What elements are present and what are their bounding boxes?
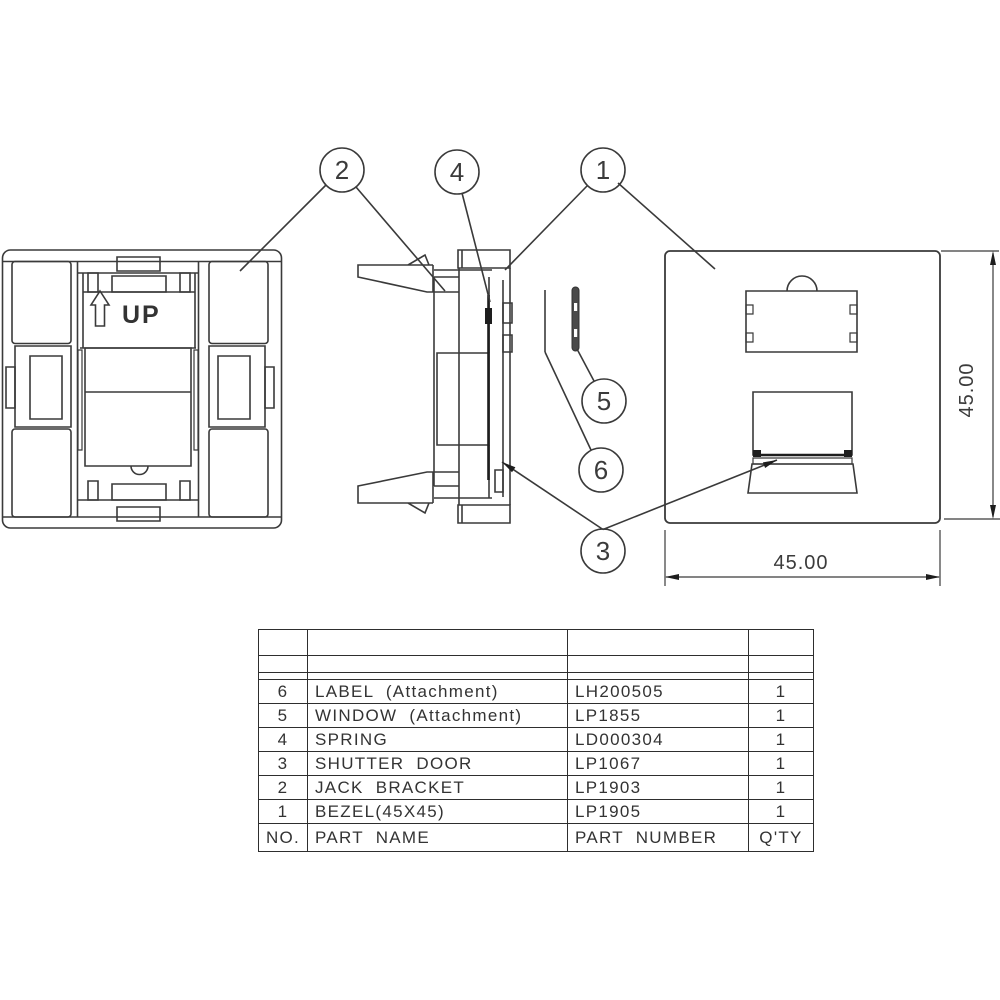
cell-qty: 1: [749, 704, 814, 728]
cell-part-name: LABEL (Attachment): [308, 680, 568, 704]
cell-qty: 1: [749, 728, 814, 752]
left-latch: [6, 346, 71, 427]
cell-no: 6: [259, 680, 308, 704]
cell-part-number: LP1903: [568, 776, 749, 800]
left-wing-top: [12, 262, 71, 344]
cell-qty: 1: [749, 752, 814, 776]
right-wing-top: [209, 262, 268, 344]
table-row-empty: [259, 673, 814, 680]
cell-part-number: LP1067: [568, 752, 749, 776]
rear-view: UP: [3, 250, 282, 528]
shutter-door-edge: [495, 470, 503, 492]
callout-balloons: 2 4 1 5 6 3: [320, 148, 626, 573]
parts-table: 6 LABEL (Attachment) LH200505 1 5 WINDOW…: [258, 629, 814, 852]
svg-text:5: 5: [597, 386, 611, 416]
callout-leaders: [240, 183, 777, 530]
dimensions: 45.00 45.00: [665, 251, 1000, 586]
svg-text:4: 4: [450, 157, 464, 187]
up-label: UP: [122, 301, 161, 329]
table-row: 6 LABEL (Attachment) LH200505 1: [259, 680, 814, 704]
table-row-empty: [259, 656, 814, 673]
up-arrow-icon: [91, 291, 109, 326]
callout-6: 6: [579, 448, 623, 492]
table-row: 5 WINDOW (Attachment) LP1855 1: [259, 704, 814, 728]
table-row: 1 BEZEL(45X45) LP1905 1: [259, 800, 814, 824]
height-dimension: 45.00: [956, 362, 978, 417]
cell-part-number: LP1905: [568, 800, 749, 824]
cell-qty: 1: [749, 776, 814, 800]
svg-text:6: 6: [594, 455, 608, 485]
technical-drawing-canvas: UP: [0, 0, 1000, 1000]
table-row: 2 JACK BRACKET LP1903 1: [259, 776, 814, 800]
release-notch: [131, 466, 148, 474]
top-clip-tab: [117, 257, 160, 271]
cell-part-name: BEZEL(45X45): [308, 800, 568, 824]
cell-part-name: WINDOW (Attachment): [308, 704, 568, 728]
svg-text:2: 2: [335, 155, 349, 185]
cell-part-name: SHUTTER DOOR: [308, 752, 568, 776]
front-view: [665, 251, 940, 523]
table-header-row: NO. PART NAME PART NUMBER Q'TY: [259, 824, 814, 852]
jack-opening: [85, 348, 191, 466]
cell-no: 3: [259, 752, 308, 776]
cell-part-number: LP1855: [568, 704, 749, 728]
bottom-wing-latch: [358, 472, 459, 513]
callout-3: 3: [581, 529, 625, 573]
window-part: [572, 287, 579, 351]
table-row-empty: [259, 630, 814, 656]
cell-no: 2: [259, 776, 308, 800]
cell-no: 5: [259, 704, 308, 728]
left-wing-bottom: [12, 429, 71, 517]
side-view: [358, 250, 512, 523]
table-row: 3 SHUTTER DOOR LP1067 1: [259, 752, 814, 776]
cell-part-name: JACK BRACKET: [308, 776, 568, 800]
cell-part-number: LH200505: [568, 680, 749, 704]
cell-no: 1: [259, 800, 308, 824]
bottom-clip-tab: [117, 507, 160, 521]
width-dimension: 45.00: [773, 552, 828, 574]
header-qty: Q'TY: [749, 824, 814, 852]
thumb-notch: [787, 276, 817, 291]
header-part-number: PART NUMBER: [568, 824, 749, 852]
svg-text:3: 3: [596, 536, 610, 566]
table-row: 4 SPRING LD000304 1: [259, 728, 814, 752]
svg-text:1: 1: [596, 155, 610, 185]
cell-qty: 1: [749, 800, 814, 824]
header-part-name: PART NAME: [308, 824, 568, 852]
callout-4: 4: [435, 150, 479, 194]
top-wing-latch: [358, 255, 459, 292]
right-wing-bottom: [209, 429, 268, 517]
shutter-opening: [753, 392, 852, 455]
cell-no: 4: [259, 728, 308, 752]
cell-qty: 1: [749, 680, 814, 704]
cell-part-name: SPRING: [308, 728, 568, 752]
label-recess: [746, 291, 857, 352]
callout-2: 2: [320, 148, 364, 192]
shutter-flap: [748, 464, 857, 493]
callout-5: 5: [582, 379, 626, 423]
cell-part-number: LD000304: [568, 728, 749, 752]
jack-body: [437, 353, 489, 445]
right-latch: [209, 346, 274, 427]
callout-1: 1: [581, 148, 625, 192]
header-no: NO.: [259, 824, 308, 852]
